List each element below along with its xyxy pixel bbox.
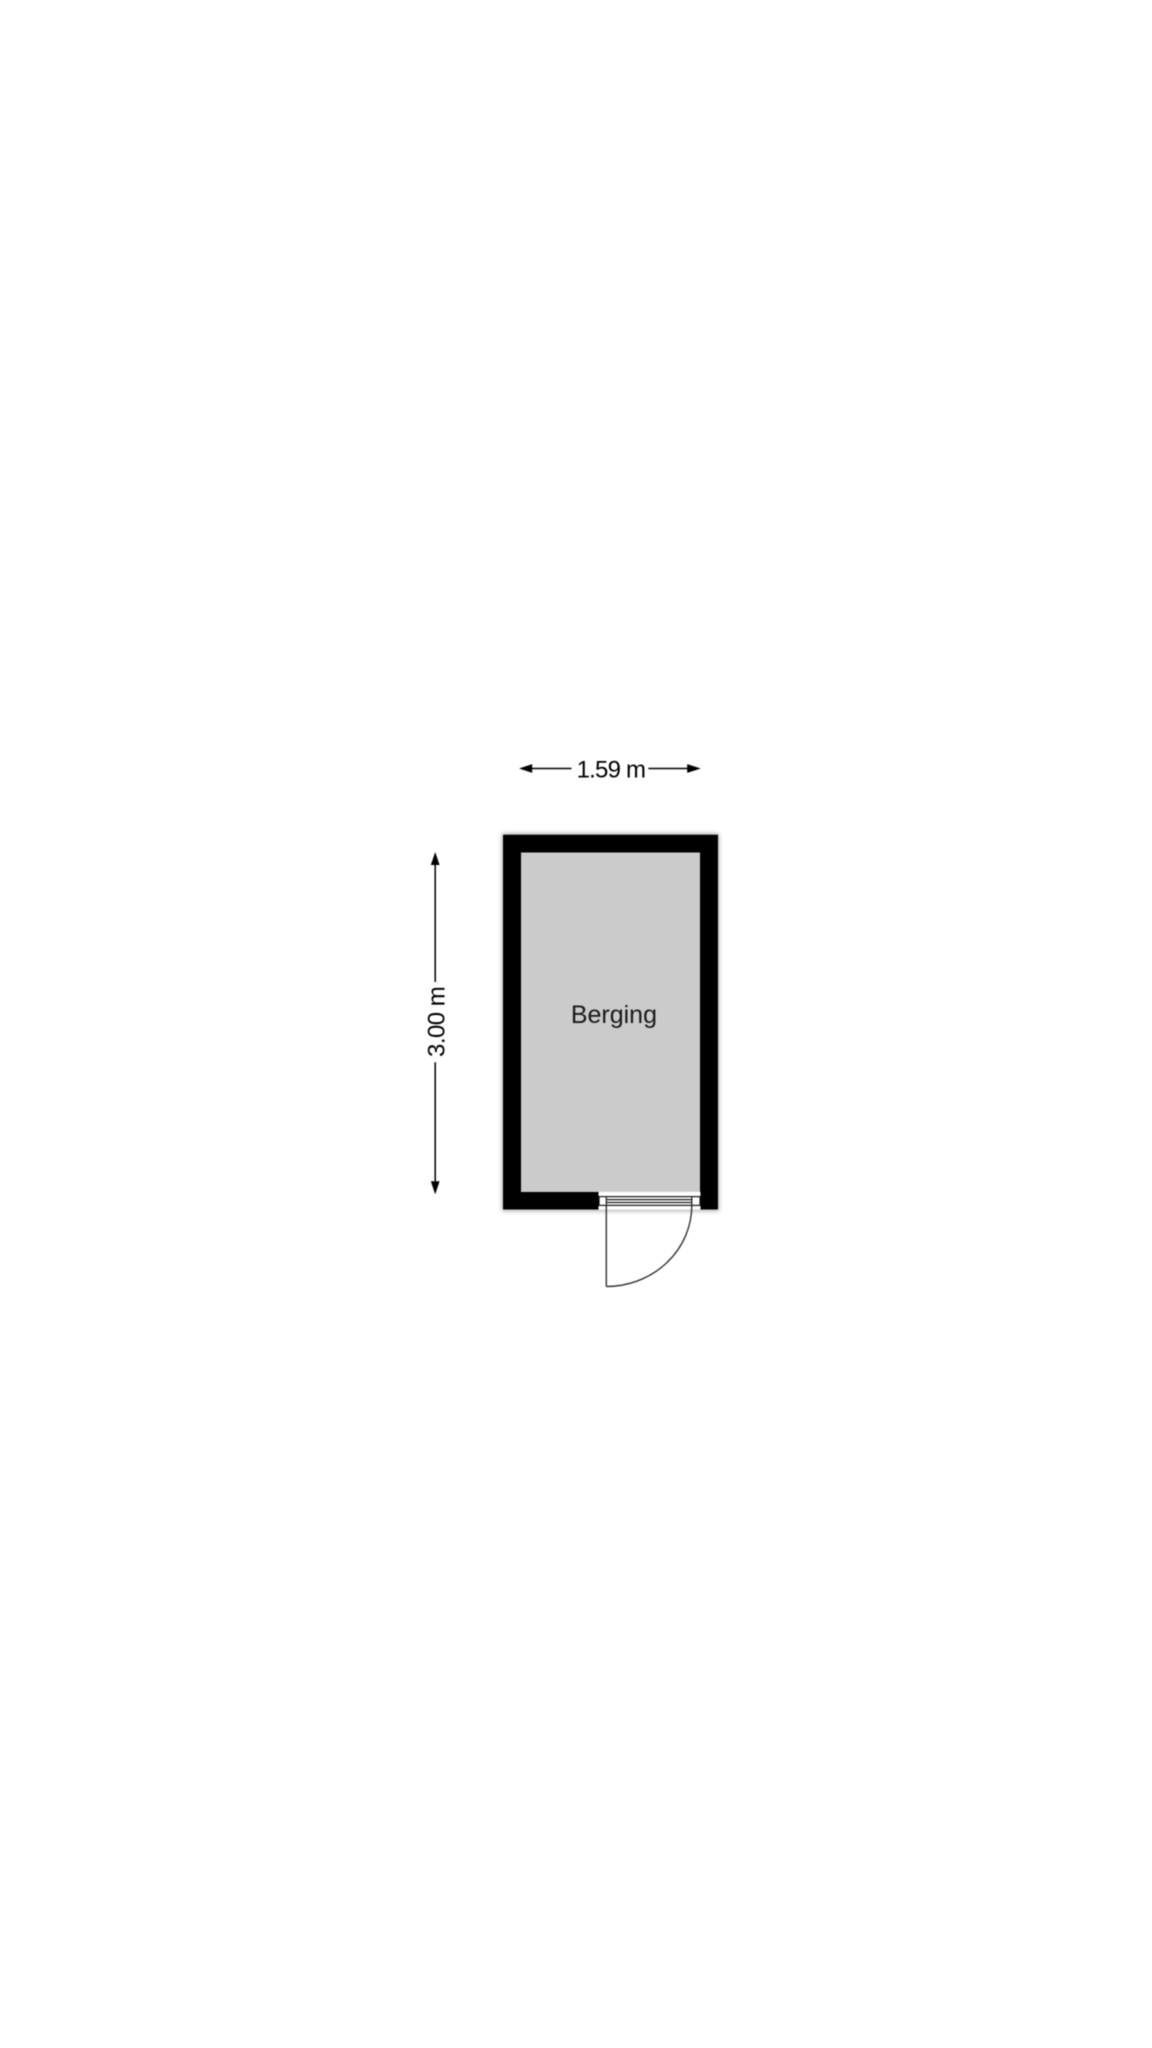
svg-text:Berging: Berging	[571, 1001, 657, 1029]
svg-text:1.59 m: 1.59 m	[577, 756, 646, 783]
svg-text:3.00 m: 3.00 m	[424, 986, 451, 1057]
